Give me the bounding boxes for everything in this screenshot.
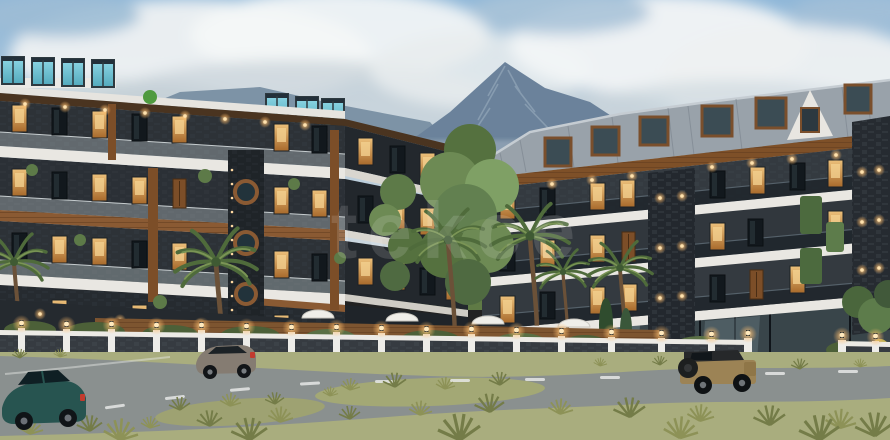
watermark-text: tekce <box>331 186 586 275</box>
architectural-render-photo: tekce <box>0 0 890 440</box>
porthole-tower <box>228 150 264 342</box>
